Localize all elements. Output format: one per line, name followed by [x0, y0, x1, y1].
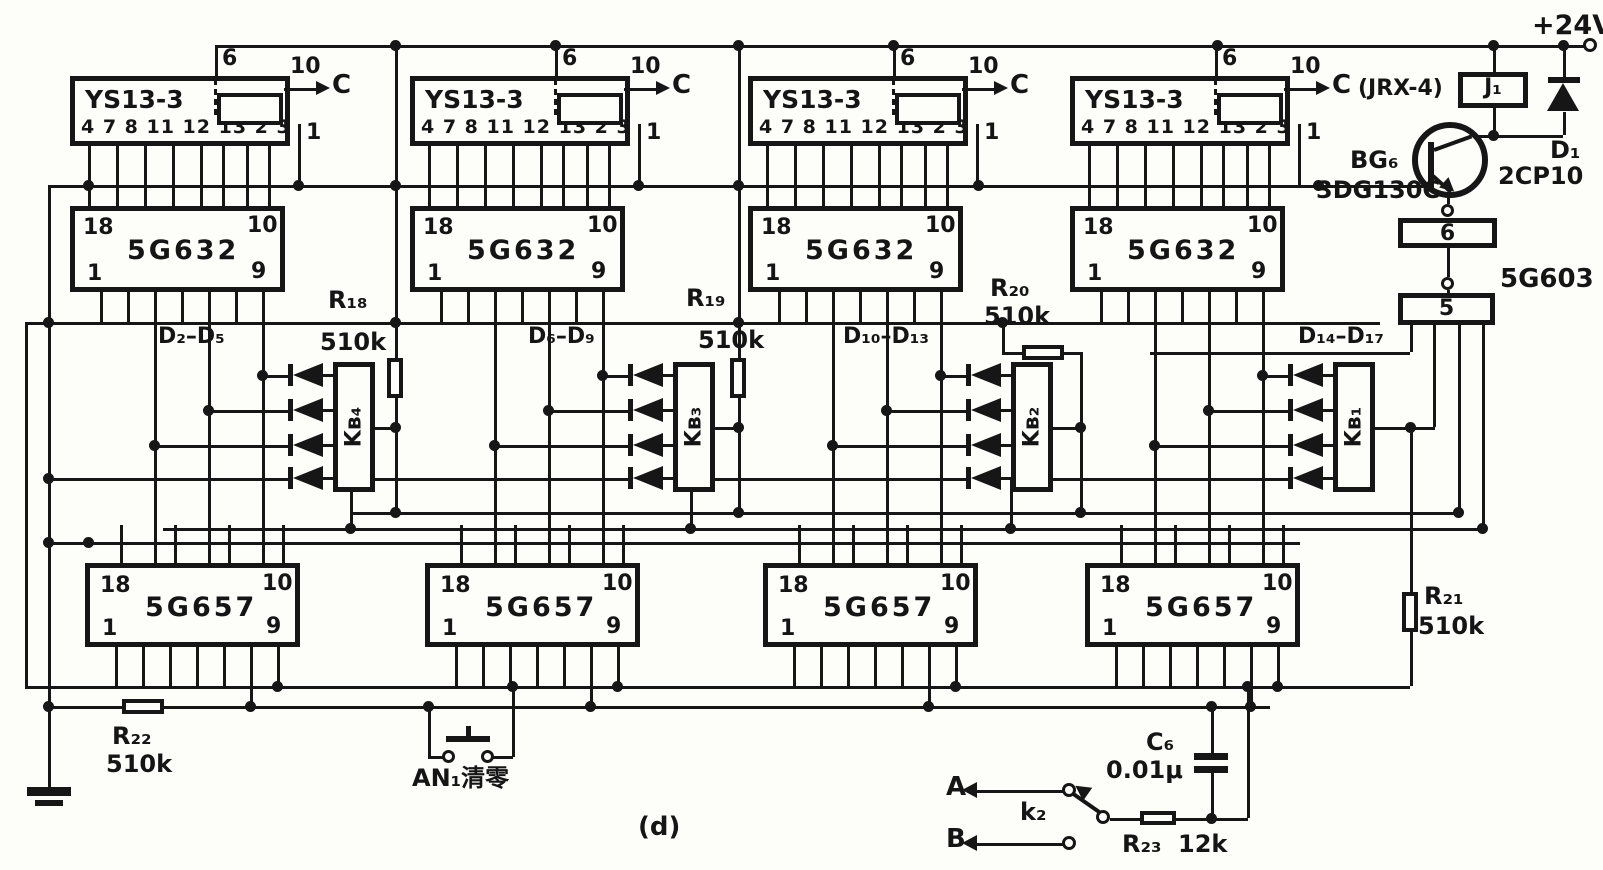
pin-number: 1 [427, 263, 442, 285]
junction-dot [1075, 507, 1086, 518]
pin-number: 6 [222, 48, 237, 70]
wire [590, 647, 593, 708]
pin-number: 1 [442, 618, 457, 640]
junction-dot [1206, 813, 1217, 824]
carry-output-label: C [1010, 72, 1029, 98]
wire [568, 525, 571, 563]
relay-contact-box [557, 93, 623, 125]
junction-dot [43, 317, 54, 328]
diode-matrix-kb-box: Kʙ₄ [333, 362, 375, 492]
junction-dot [733, 507, 744, 518]
wire [323, 409, 333, 412]
wire [638, 124, 641, 187]
arrow-right-icon [994, 81, 1008, 95]
figure-caption: (d) [638, 814, 680, 840]
pin-number: 9 [1251, 261, 1266, 283]
pin-number: 10 [587, 215, 618, 237]
wire [946, 146, 949, 208]
wire [1268, 146, 1271, 208]
junction-dot [1075, 422, 1086, 433]
wire [1062, 352, 1082, 355]
resistor-r19-value: 510k [698, 328, 764, 352]
wire [1200, 146, 1203, 208]
wire [805, 292, 808, 322]
power-rail-label: +24V [1532, 12, 1603, 39]
diode-icon [633, 433, 663, 457]
ic-5g603-pin5-box: 5 [1398, 293, 1495, 325]
junction-dot [1257, 370, 1268, 381]
junction-dot [1149, 440, 1160, 451]
wire [284, 88, 316, 91]
wire [1154, 292, 1157, 563]
wire [120, 525, 123, 563]
pin-number: 1 [306, 122, 321, 144]
wire [663, 409, 673, 412]
wire [900, 146, 903, 208]
kb-label: Kʙ₂ [1020, 407, 1045, 448]
pin-number: 18 [761, 217, 792, 239]
ic-5g657-label: 5G657 [823, 594, 935, 621]
diode-icon [971, 398, 1001, 422]
resistor-r22-value: 510k [106, 752, 172, 776]
pin-number: 1 [87, 263, 102, 285]
diode-icon [633, 363, 663, 387]
wire [196, 647, 199, 688]
pin-number: 10 [602, 573, 633, 595]
wire [1154, 445, 1288, 448]
pin-number: 1 [984, 122, 999, 144]
wire [1433, 325, 1436, 427]
junction-dot [390, 180, 401, 191]
wire [492, 756, 513, 759]
junction-dot [43, 473, 54, 484]
resistor-r18 [387, 358, 403, 398]
diode-matrix-kb-box: Kʙ₃ [673, 362, 715, 492]
junction-dot [612, 681, 623, 692]
diode-d1-icon [1547, 83, 1579, 111]
wire [1100, 292, 1103, 322]
ic-5g632-box: 18 10 5G632 1 9 [70, 206, 285, 292]
wire [512, 146, 515, 208]
wire [1001, 409, 1011, 412]
ic-5g632-box: 18 10 5G632 1 9 [1070, 206, 1285, 292]
wire [794, 146, 797, 208]
wire [622, 525, 625, 563]
carry-output-label: C [672, 72, 691, 98]
wire [1458, 325, 1461, 512]
pin-number: 10 [1247, 215, 1278, 237]
wire [235, 292, 238, 322]
wire [1447, 248, 1450, 277]
wire [798, 525, 801, 563]
pushbutton-stem-icon [466, 726, 471, 736]
junction-dot [597, 370, 608, 381]
ic-5g632-label: 5G632 [805, 237, 917, 264]
junction-dot [272, 681, 283, 692]
junction-dot [881, 405, 892, 416]
pin-number: 18 [100, 575, 131, 597]
ground-icon [27, 787, 71, 796]
carry-output-label: C [1332, 72, 1351, 98]
wire [586, 146, 589, 208]
wire [1120, 525, 1123, 563]
wire [1323, 374, 1333, 377]
wire [395, 398, 398, 512]
pin-number: 10 [247, 215, 278, 237]
wire [852, 525, 855, 563]
wire [88, 146, 91, 208]
wire [350, 512, 1458, 515]
junction-dot [1272, 681, 1283, 692]
diode-icon [633, 466, 663, 490]
relay-contact-box [217, 93, 283, 125]
junction-dot [685, 523, 696, 534]
wire [48, 542, 1300, 545]
wire [1196, 647, 1199, 688]
ic-5g603-pin6-box: 6 [1398, 218, 1497, 248]
junction-dot [733, 40, 744, 51]
ic-ys13-3-box: YS13-3 4 7 8 11 12 13 2 3 [70, 76, 290, 146]
capacitor-c6-value: 0.01μ [1106, 758, 1183, 782]
wire [1116, 146, 1119, 208]
pin-number: 10 [290, 56, 321, 78]
wire [282, 525, 285, 563]
pin-number: 10 [925, 215, 956, 237]
wire [1169, 647, 1172, 688]
wire [540, 146, 543, 208]
wire [832, 445, 966, 448]
wire [878, 146, 881, 208]
resistor-r23-label: R₂₃ [1122, 832, 1162, 856]
schematic-canvas: +24V (JRX-4) J₁ D₁ 2CP10 BG₆ 3DG130C 6 5… [0, 0, 1603, 870]
wire [1211, 773, 1214, 818]
wire [1323, 477, 1333, 480]
wire [1235, 292, 1238, 322]
carry-output-label: C [332, 72, 351, 98]
ic-5g657-label: 5G657 [1145, 594, 1257, 621]
diode-matrix-kb-box: Kʙ₁ [1333, 362, 1375, 492]
wire [482, 647, 485, 688]
wire [548, 410, 628, 413]
wire [738, 45, 741, 358]
kb-label: Kʙ₃ [682, 407, 707, 448]
pin-number: 10 [630, 56, 661, 78]
pin-circle [1441, 277, 1454, 290]
resistor-r21-label: R₂₁ [1424, 584, 1464, 608]
wire [624, 88, 656, 91]
diode-range-label: D₂–D₅ [158, 326, 225, 348]
wire [181, 292, 184, 322]
wire [924, 146, 927, 208]
diode-icon [1293, 466, 1323, 490]
wire [847, 647, 850, 688]
pin-number: 18 [778, 575, 809, 597]
wire [1001, 477, 1011, 480]
switch-arm-arrow [1071, 779, 1092, 801]
wire [1001, 444, 1011, 447]
wire [223, 647, 226, 688]
wire [250, 647, 253, 708]
junction-dot [83, 537, 94, 548]
wire [893, 45, 896, 76]
arrow-right-icon [1316, 81, 1330, 95]
wire [1208, 410, 1288, 413]
wire [512, 686, 515, 757]
pushbutton-bar-icon [446, 736, 490, 742]
junction-dot [923, 701, 934, 712]
transistor-bg6-type: 3DG130C [1316, 178, 1440, 202]
wire [142, 647, 145, 688]
wire [1410, 325, 1413, 352]
wire [766, 146, 769, 208]
wire [222, 146, 225, 208]
resistor-r20-value: 510k [984, 304, 1050, 328]
wire [172, 146, 175, 208]
pin-number: 9 [266, 616, 281, 638]
wire [602, 292, 605, 563]
wire [298, 124, 301, 187]
junction-dot [1245, 701, 1256, 712]
ic-5g603-label: 5G603 [1500, 266, 1594, 292]
wire [940, 292, 943, 563]
switch-k2-label: k₂ [1020, 800, 1046, 824]
wire [467, 292, 470, 322]
wire [455, 647, 458, 688]
wire [901, 647, 904, 688]
pin-number: 1 [1102, 618, 1117, 640]
pin-number: 18 [423, 217, 454, 239]
diode-icon [1293, 398, 1323, 422]
capacitor-c6-plate [1194, 753, 1228, 760]
capacitor-c6-label: C₆ [1146, 730, 1174, 754]
diode-icon [971, 433, 1001, 457]
wire [116, 146, 119, 208]
pin-number: 9 [1266, 616, 1281, 638]
wire [1222, 146, 1225, 208]
wire [906, 525, 909, 563]
pin-number: 1 [1306, 122, 1321, 144]
wire [976, 124, 979, 187]
wire [1142, 647, 1145, 688]
wire [1211, 706, 1214, 754]
wire [456, 146, 459, 208]
arrow-right-icon [316, 81, 330, 95]
wire [1223, 647, 1226, 688]
wire [690, 478, 968, 481]
ic-5g632-label: 5G632 [467, 237, 579, 264]
wire [928, 647, 931, 708]
pin-number: 18 [83, 217, 114, 239]
diode-d1-label: D₁ [1550, 138, 1580, 162]
wire [850, 146, 853, 208]
wire [246, 146, 249, 208]
wire [1115, 647, 1118, 688]
wire [395, 45, 398, 358]
wire [859, 292, 862, 322]
pin-number: 1 [1087, 263, 1102, 285]
wire [562, 146, 565, 208]
switch-contact [1062, 836, 1076, 850]
junction-dot [1405, 422, 1416, 433]
junction-dot [950, 681, 961, 692]
junction-dot [1558, 40, 1569, 51]
wire [1172, 146, 1175, 208]
junction-dot [1005, 523, 1016, 534]
wire [144, 146, 147, 208]
wire [962, 88, 994, 91]
pin6-label: 6 [1440, 221, 1455, 246]
wire [262, 292, 265, 563]
pin-number: 18 [1100, 575, 1131, 597]
pin-number: 10 [1290, 56, 1321, 78]
junction-dot [390, 422, 401, 433]
wire [738, 398, 741, 512]
wire [323, 374, 333, 377]
arrow-right-icon [656, 81, 670, 95]
kb-label: Kʙ₄ [342, 407, 367, 448]
junction-dot [390, 317, 401, 328]
junction-dot [733, 422, 744, 433]
relay-contact-box [895, 93, 961, 125]
diode-icon [293, 466, 323, 490]
wire [25, 322, 28, 686]
wire [1110, 818, 1142, 821]
pin-number: 10 [262, 573, 293, 595]
wire [832, 292, 835, 563]
junction-dot [1453, 507, 1464, 518]
relay-j1-box: J₁ [1458, 72, 1528, 108]
wire [874, 647, 877, 688]
wire [1181, 292, 1184, 322]
junction-dot [245, 701, 256, 712]
resistor-r19 [730, 358, 746, 398]
junction-dot [489, 440, 500, 451]
wire [323, 477, 333, 480]
wire [228, 525, 231, 563]
ic-5g632-label: 5G632 [127, 237, 239, 264]
junction-dot [423, 701, 434, 712]
junction-dot [1488, 40, 1499, 51]
relay-contact-box [1217, 93, 1283, 125]
wire [127, 292, 130, 322]
wire [494, 292, 497, 563]
wire [514, 525, 517, 563]
ic-ys13-3-label: YS13-3 [1085, 87, 1184, 112]
wire [1410, 632, 1413, 686]
ic-5g632-label: 5G632 [1127, 237, 1239, 264]
wire [663, 374, 673, 377]
wire [215, 45, 218, 76]
wire [913, 292, 916, 322]
pin-number: 10 [968, 56, 999, 78]
junction-dot [935, 370, 946, 381]
diode-icon [293, 398, 323, 422]
clear-button-label: AN₁清零 [412, 766, 509, 790]
junction-dot [585, 701, 596, 712]
wire [1088, 146, 1091, 208]
junction-dot [257, 370, 268, 381]
pin-number: 9 [944, 616, 959, 638]
resistor-r18-value: 510k [320, 330, 386, 354]
wire [1298, 124, 1301, 187]
pin-number: 9 [251, 261, 266, 283]
pin-number: 18 [1083, 217, 1114, 239]
wire [663, 477, 673, 480]
pin-number: 10 [940, 573, 971, 595]
resistor-r20-label: R₂₀ [990, 276, 1030, 300]
ic-ys13-3-label: YS13-3 [85, 87, 184, 112]
ic-5g632-box: 18 10 5G632 1 9 [410, 206, 625, 292]
ic-5g632-box: 18 10 5G632 1 9 [748, 206, 963, 292]
button-contact [481, 750, 494, 763]
wire [575, 292, 578, 322]
resistor-r18-label: R₁₈ [328, 288, 368, 312]
ic-ys13-3-box: YS13-3 4 7 8 11 12 13 2 3 [1070, 76, 1290, 146]
ic-ys13-3-box: YS13-3 4 7 8 11 12 13 2 3 [748, 76, 968, 146]
wire [25, 322, 1380, 325]
ic-5g657-label: 5G657 [145, 594, 257, 621]
diode-icon [293, 363, 323, 387]
junction-dot [1206, 701, 1217, 712]
ic-ys13-3-label: YS13-3 [763, 87, 862, 112]
wire [1482, 325, 1485, 528]
ic-ys13-3-label: YS13-3 [425, 87, 524, 112]
junction-dot [149, 440, 160, 451]
junction-dot [827, 440, 838, 451]
ic-5g657-box: 18 10 5G657 1 9 [763, 563, 978, 647]
junction-dot [733, 180, 744, 191]
ic-5g657-box: 18 10 5G657 1 9 [85, 563, 300, 647]
resistor-r20 [1022, 345, 1064, 360]
wire [976, 843, 1064, 846]
wire [1246, 146, 1249, 208]
resistor-r23-value: 12k [1178, 832, 1227, 856]
pin-number: 1 [646, 122, 661, 144]
wire [778, 292, 781, 322]
wire [350, 478, 630, 481]
switch-contact [1096, 810, 1110, 824]
wire [440, 292, 443, 322]
diode-icon [633, 398, 663, 422]
wire [1002, 352, 1024, 355]
wire [323, 444, 333, 447]
wire [1284, 88, 1316, 91]
pin-number: 18 [440, 575, 471, 597]
pin-number: 6 [562, 48, 577, 70]
junction-dot [43, 537, 54, 548]
ic-ys13-3-box: YS13-3 4 7 8 11 12 13 2 3 [410, 76, 630, 146]
wire [48, 706, 1270, 709]
wire [663, 444, 673, 447]
pin-circle [1441, 204, 1454, 217]
diode-range-label: D₆–D₉ [528, 326, 595, 348]
wire [1323, 409, 1333, 412]
wire [536, 647, 539, 688]
wire [509, 647, 512, 688]
wire [100, 292, 103, 322]
diode-icon [971, 466, 1001, 490]
diode-d1-type: 2CP10 [1498, 164, 1583, 188]
pin5-label: 5 [1439, 296, 1454, 321]
resistor-r21 [1402, 592, 1418, 632]
wire [1144, 146, 1147, 208]
pin-number: 9 [929, 261, 944, 283]
junction-dot [43, 701, 54, 712]
diode-matrix-kb-box: Kʙ₂ [1011, 362, 1053, 492]
pin-number: 9 [606, 616, 621, 638]
wire [793, 647, 796, 688]
junction-dot [203, 405, 214, 416]
